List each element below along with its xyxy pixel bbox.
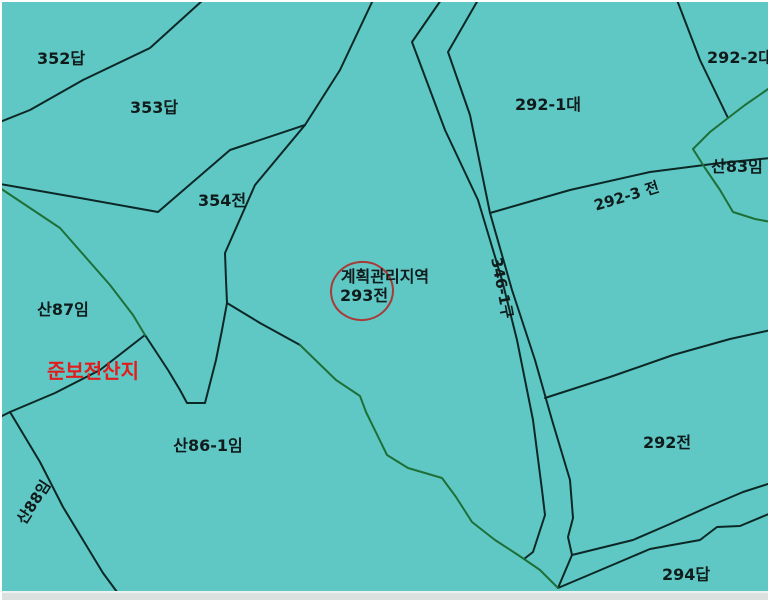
parcel-label-san87-im: 산87임 (37, 300, 89, 319)
boundary-valley-v (145, 303, 227, 403)
green-boundary-junction-south (524, 559, 558, 588)
cadastral-map-canvas[interactable]: 352답353답354전292-1대292-2대산83임292-3 전346-1… (0, 0, 771, 600)
parcel-label-354-jeon: 354전 (198, 191, 246, 210)
boundary-353-354 (0, 0, 373, 212)
border-left (0, 0, 2, 600)
parcel-label-292-2-dae: 292-2대 (707, 48, 771, 67)
boundary-354-293 (225, 125, 305, 303)
parcel-label-352-dap: 352답 (37, 49, 85, 68)
boundary-292-3-292 (545, 330, 771, 398)
parcel-label-293-jeon: 293전 (340, 286, 388, 305)
parcel-label-san83-im: 산83임 (711, 157, 763, 176)
border-top (0, 0, 771, 2)
parcel-label-292-jeon: 292전 (643, 433, 691, 452)
green-boundary-san83-upper (693, 87, 771, 149)
green-boundaries (0, 87, 771, 588)
bottom-bar-highlight (0, 591, 771, 593)
parcel-label-san86-1-im: 산86-1임 (173, 436, 242, 455)
boundary-junction-southeast (227, 303, 300, 345)
parcel-label-292-1-dae: 292-1대 (515, 95, 581, 114)
map-drawing: 352답353답354전292-1대292-2대산83임292-3 전346-1… (0, 0, 771, 600)
parcel-labels: 352답353답354전292-1대292-2대산83임292-3 전346-1… (13, 48, 771, 584)
parcel-label-san88-im: 산88임 (13, 477, 55, 527)
zone-label-semi-preserved-forest: 준보전산지 (47, 359, 139, 383)
parcel-label-353-dap: 353답 (130, 98, 178, 117)
parcel-label-294-dap: 294답 (662, 565, 710, 584)
zone-label-plan-management: 계획관리지역 (341, 267, 429, 286)
green-boundary-san86-long (300, 345, 524, 559)
